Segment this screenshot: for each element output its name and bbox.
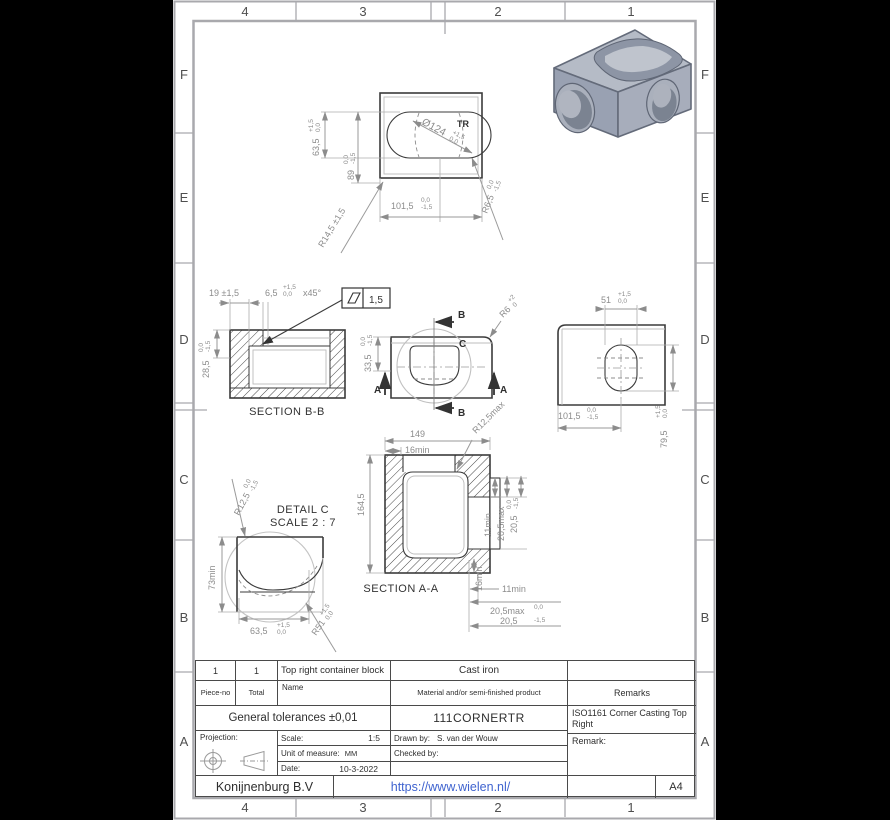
date-row: Date: 10-3-2022 <box>278 762 391 776</box>
svg-text:164,5: 164,5 <box>356 493 366 516</box>
zone-row-label: C <box>700 472 709 487</box>
svg-text:28,5: 28,5 <box>201 360 211 378</box>
section-b-b: 19 ±1,5 6,5 +1,5 0,0 x45° 1,5 28,5 0,0 <box>198 284 390 418</box>
svg-text:20,5max: 20,5max <box>496 506 506 541</box>
zone-row-label: C <box>179 472 188 487</box>
svg-text:+1,5: +1,5 <box>618 291 631 298</box>
dim-101-5-side-view: 101,5 0,0 -1,5 <box>558 407 599 421</box>
section-a-mark: A <box>374 385 381 396</box>
svg-text:Ø124: Ø124 <box>420 116 448 139</box>
svg-text:101,5: 101,5 <box>558 411 581 421</box>
svg-text:0,0: 0,0 <box>587 407 596 414</box>
svg-text:R12,5max: R12,5max <box>470 399 506 435</box>
dim-149: 149 <box>410 429 425 439</box>
detail-c-mark: C <box>459 339 466 350</box>
fcf-value: 1,5 <box>369 295 383 306</box>
unit-value: MM <box>340 749 358 758</box>
zone-row-label: D <box>179 332 188 347</box>
dim-28-5: 28,5 0,0 -1,5 <box>198 340 212 378</box>
drawn-by-label: Drawn by: <box>394 734 430 743</box>
dim-20-5-side: 20,5 0,0 -1,5 <box>506 497 520 533</box>
blank-cell <box>568 776 656 798</box>
date-value: 10-3-2022 <box>339 764 390 774</box>
dim-r6-5: R6,5 0,0 -1,5 <box>477 177 503 215</box>
dim-20-5max-side: 20,5max <box>496 506 506 541</box>
svg-text:73min: 73min <box>207 565 217 590</box>
dim-101-5-top-view: 101,5 0,0 -1,5 <box>391 197 433 211</box>
remarks-label: Remarks <box>568 681 696 706</box>
dim-11min-bottom: 11min <box>502 584 526 594</box>
svg-text:33,5: 33,5 <box>363 354 373 372</box>
svg-text:-1,5: -1,5 <box>350 152 357 164</box>
dim-89: 89 0,0 -1,5 <box>343 152 357 180</box>
name-label: Name <box>278 681 391 706</box>
unit-label: Unit of measure: <box>281 749 340 758</box>
first-angle-projection-icon <box>198 748 272 774</box>
dim-20-5-bottom: 20,5 <box>500 616 518 626</box>
svg-text:+1,5: +1,5 <box>277 622 290 629</box>
svg-text:11min: 11min <box>483 513 493 537</box>
zone-row-label: D <box>700 332 709 347</box>
svg-text:0,0: 0,0 <box>421 197 430 204</box>
checked-by-row: Checked by: <box>391 746 568 762</box>
section-b-mark: B <box>458 310 465 321</box>
side-view: 51 +1,5 0,0 101,5 0,0 -1,5 79,5 +1,5 0,0 <box>558 291 679 448</box>
piece-no-value: 1 <box>196 661 236 681</box>
iso-3d-model <box>550 30 691 137</box>
svg-text:0,0: 0,0 <box>360 337 367 346</box>
dim-73min: 73min <box>207 565 217 590</box>
svg-text:-1,5: -1,5 <box>205 340 212 352</box>
svg-text:16min: 16min <box>474 566 484 591</box>
svg-text:0,0: 0,0 <box>277 629 286 636</box>
drawing-sheet: 4 3 2 1 4 3 2 1 F E D C B A F E D C B A <box>173 0 716 820</box>
svg-text:+1,5: +1,5 <box>308 119 315 132</box>
section-aa-label: SECTION A-A <box>363 583 438 595</box>
tr-label: TR <box>457 119 469 129</box>
dim-r51: R51 +1,5 0,0 <box>307 602 338 637</box>
section-a-a: 149 16min R12,5max 164,5 <box>356 399 561 632</box>
svg-text:101,5: 101,5 <box>391 201 414 211</box>
zone-row-label: A <box>180 734 189 749</box>
dim-33-5: 33,5 0,0 -1,5 <box>360 334 374 372</box>
svg-text:0,0: 0,0 <box>198 343 205 352</box>
detail-c-title: DETAIL C <box>277 504 329 516</box>
zone-row-label: A <box>701 734 710 749</box>
svg-text:0,0: 0,0 <box>343 155 350 164</box>
dim-19: 19 ±1,5 <box>209 288 239 298</box>
blank-cell <box>568 661 696 681</box>
dim-r12-5: R12,5 0,0 -1,5 <box>229 476 260 518</box>
dim-11min-side: 11min <box>483 513 493 537</box>
zone-col-label: 3 <box>359 4 366 19</box>
title-block: 1 1 Top right container block Cast iron … <box>195 660 695 797</box>
svg-text:x45°: x45° <box>303 288 322 298</box>
svg-text:+1,5: +1,5 <box>655 405 662 418</box>
svg-text:0,0: 0,0 <box>662 409 669 418</box>
drawn-by-value: S. van der Wouw <box>430 734 498 743</box>
zone-col-label: 2 <box>494 800 501 815</box>
zone-col-label: 1 <box>627 800 634 815</box>
dim-51: 51 +1,5 0,0 <box>601 291 631 305</box>
svg-text:20,5: 20,5 <box>509 515 519 533</box>
zone-row-label: B <box>180 610 189 625</box>
section-bb-label: SECTION B-B <box>249 406 325 418</box>
zone-col-label: 4 <box>241 800 248 815</box>
material-label: Material and/or semi-finished product <box>391 681 568 706</box>
detail-c: DETAIL C SCALE 2 : 7 73min 63,5 <box>207 476 338 652</box>
svg-text:-1,5: -1,5 <box>421 204 433 211</box>
dim-20-5-bottom-tol-up: 0,0 <box>534 604 543 611</box>
scale-row: Scale: 1:5 <box>278 731 391 746</box>
svg-text:R6: R6 <box>497 304 512 319</box>
svg-text:79,5: 79,5 <box>659 430 669 448</box>
part-name-value: Top right container block <box>278 661 391 681</box>
zone-row-label: E <box>701 190 710 205</box>
company-name: Konijnenburg B.V <box>196 776 334 798</box>
svg-text:+1,5: +1,5 <box>283 284 296 291</box>
total-value: 1 <box>236 661 278 681</box>
svg-text:-1,5: -1,5 <box>513 497 520 509</box>
svg-text:-1,5: -1,5 <box>367 334 374 346</box>
dim-63-5-detail: 63,5 +1,5 0,0 <box>250 622 290 636</box>
svg-text:63,5: 63,5 <box>311 138 321 156</box>
projection-cell: Projection: <box>196 731 278 776</box>
dim-16min-bottom: 16min <box>474 566 484 591</box>
section-a-mark: A <box>500 385 507 396</box>
website-link[interactable]: https://www.wielen.nl/ <box>391 780 511 794</box>
dim-r14-5: R14,5 ±1,5 <box>316 206 347 249</box>
website-cell: https://www.wielen.nl/ <box>334 776 568 798</box>
blank-cell <box>391 762 568 776</box>
dim-16min-top: 16min <box>405 445 430 455</box>
svg-text:51: 51 <box>601 295 611 305</box>
svg-text:-1,5: -1,5 <box>587 414 599 421</box>
dim-164-5: 164,5 <box>356 493 366 516</box>
drawn-by-row: Drawn by: S. van der Wouw <box>391 731 568 746</box>
zone-col-label: 3 <box>359 800 366 815</box>
piece-no-label: Piece-no <box>196 681 236 706</box>
svg-text:0,0: 0,0 <box>618 298 627 305</box>
date-label: Date: <box>281 764 300 773</box>
dim-r6: R6 +2 0 <box>495 293 522 320</box>
section-b-mark: B <box>458 408 465 419</box>
material-label-text: Material and/or semi-finished product <box>417 689 542 698</box>
total-label: Total <box>236 681 278 706</box>
remark-cell: Remark: <box>568 734 696 776</box>
svg-text:0,0: 0,0 <box>506 500 513 509</box>
svg-text:R14,5 ±1,5: R14,5 ±1,5 <box>316 206 347 249</box>
dim-20-5max-bottom: 20,5max <box>490 606 525 616</box>
remarks-value: ISO1161 Corner Casting Top Right <box>568 706 696 734</box>
paper-size: A4 <box>656 776 696 798</box>
svg-text:0,0: 0,0 <box>315 123 322 132</box>
unit-row: Unit of measure: MM <box>278 746 391 762</box>
zone-row-label: B <box>701 610 710 625</box>
dim-63-5-top-view: 63,5 +1,5 0,0 <box>308 119 322 156</box>
svg-text:R51: R51 <box>309 618 327 637</box>
zone-col-label: 1 <box>627 4 634 19</box>
dim-79-5: 79,5 +1,5 0,0 <box>655 405 669 448</box>
zone-row-label: E <box>180 190 189 205</box>
general-tolerances: General tolerances ±0,01 <box>196 706 391 731</box>
zone-row-label: F <box>180 67 188 82</box>
svg-text:63,5: 63,5 <box>250 626 268 636</box>
scale-label: Scale: <box>281 734 303 743</box>
svg-text:89: 89 <box>346 170 356 180</box>
svg-text:0: 0 <box>511 301 519 309</box>
dim-6-5-chamfer: 6,5 +1,5 0,0 x45° <box>265 284 322 298</box>
material-value: Cast iron <box>391 661 568 681</box>
zone-col-label: 4 <box>241 4 248 19</box>
screenshot-canvas: 4 3 2 1 4 3 2 1 F E D C B A F E D C B A <box>0 0 890 820</box>
dim-r12-5max: R12,5max <box>470 399 506 435</box>
scale-value: 1:5 <box>368 733 390 743</box>
projection-label: Projection: <box>200 733 238 742</box>
dim-20-5-bottom-tol-dn: -1,5 <box>534 617 546 624</box>
svg-text:6,5: 6,5 <box>265 288 278 298</box>
zone-col-label: 2 <box>494 4 501 19</box>
zone-row-label: F <box>701 67 709 82</box>
top-view: 63,5 +1,5 0,0 89 0,0 -1,5 101,5 0,0 -1,5 <box>308 93 503 253</box>
detail-c-scale: SCALE 2 : 7 <box>270 517 336 529</box>
svg-text:0,0: 0,0 <box>283 291 292 298</box>
svg-text:R12,5: R12,5 <box>232 491 252 517</box>
part-number: 111CORNERTR <box>391 706 568 731</box>
